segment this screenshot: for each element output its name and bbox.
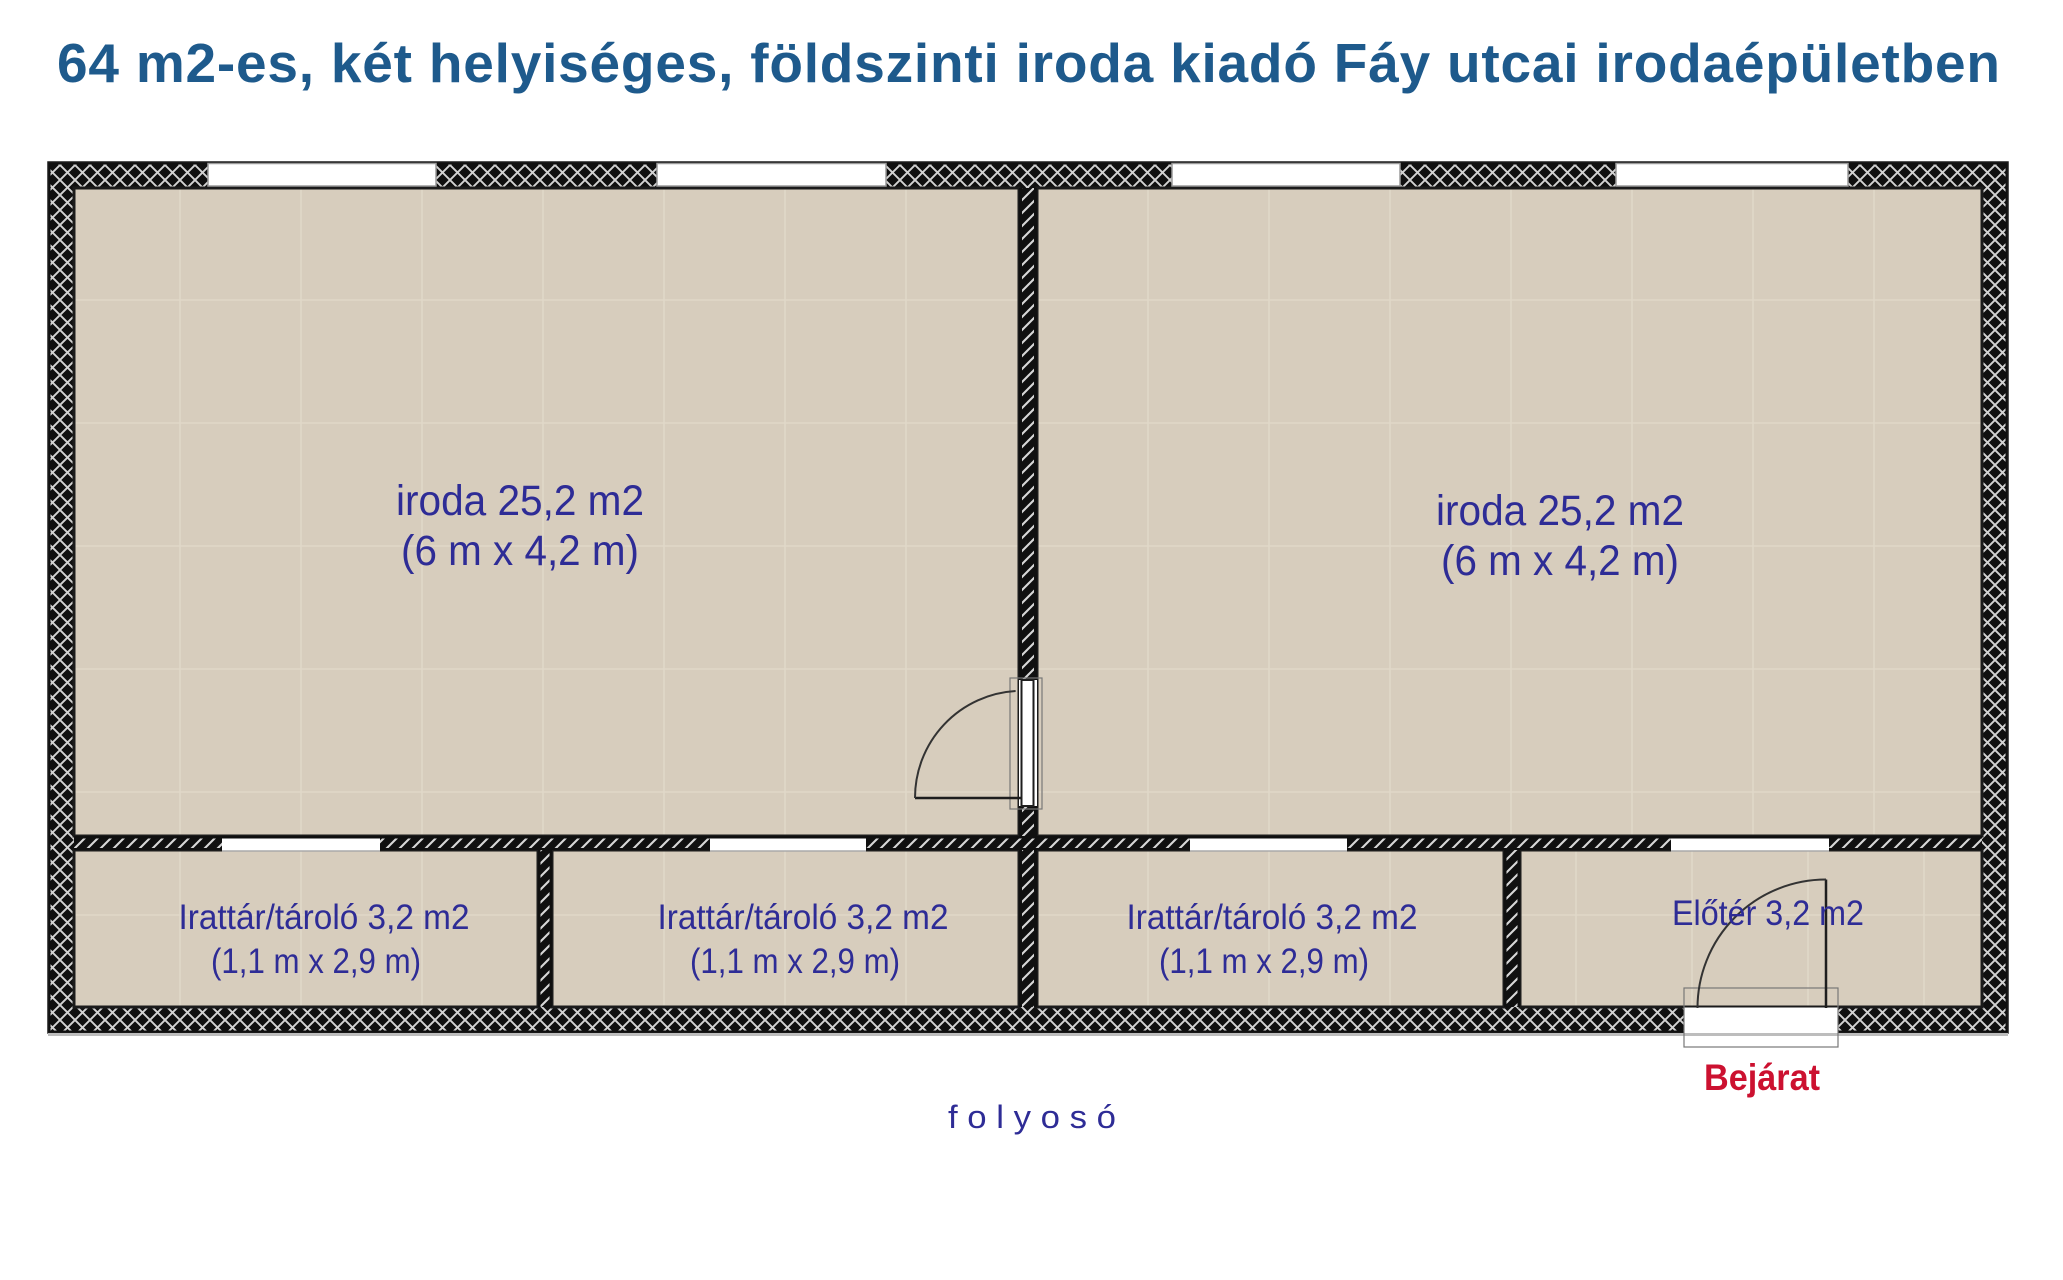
svg-text:Irattár/tároló 3,2 m2: Irattár/tároló 3,2 m2 xyxy=(1127,898,1418,937)
svg-text:f o l y o s ó: f o l y o s ó xyxy=(948,1099,1116,1135)
svg-text:(6 m x 4,2 m): (6 m x 4,2 m) xyxy=(1441,537,1679,585)
svg-text:(1,1 m x 2,9 m): (1,1 m x 2,9 m) xyxy=(211,942,421,981)
svg-text:iroda 25,2 m2: iroda 25,2 m2 xyxy=(396,477,644,525)
svg-text:Irattár/tároló 3,2 m2: Irattár/tároló 3,2 m2 xyxy=(658,898,949,937)
svg-text:iroda 25,2 m2: iroda 25,2 m2 xyxy=(1436,487,1684,535)
svg-text:(1,1 m x 2,9 m): (1,1 m x 2,9 m) xyxy=(690,942,900,981)
svg-text:Előtér 3,2 m2: Előtér 3,2 m2 xyxy=(1672,893,1864,933)
svg-text:(6 m x 4,2 m): (6 m x 4,2 m) xyxy=(401,527,639,575)
svg-text:Irattár/tároló 3,2 m2: Irattár/tároló 3,2 m2 xyxy=(179,898,470,937)
svg-text:64 m2-es, két helyiséges, föld: 64 m2-es, két helyiséges, földszinti iro… xyxy=(57,32,2000,94)
svg-text:(1,1 m x 2,9 m): (1,1 m x 2,9 m) xyxy=(1159,942,1369,981)
svg-text:Bejárat: Bejárat xyxy=(1704,1057,1820,1098)
